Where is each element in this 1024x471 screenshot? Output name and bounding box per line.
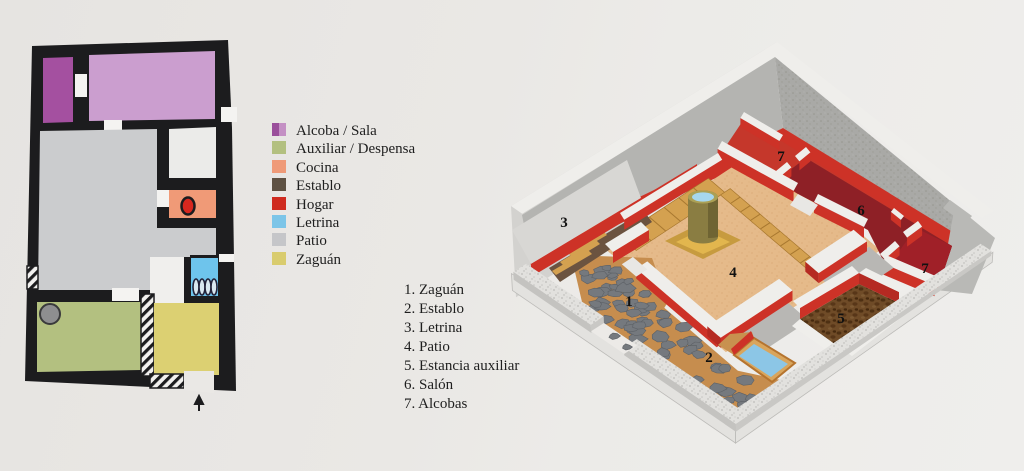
svg-text:Auxiliar / Despensa: Auxiliar / Despensa [296,141,415,157]
svg-text:Letrina: Letrina [296,215,340,231]
svg-text:7. Alcobas: 7. Alcobas [404,396,467,412]
svg-text:2: 2 [705,350,713,366]
svg-text:3. Letrina: 3. Letrina [404,320,463,336]
svg-text:5. Estancia auxiliar: 5. Estancia auxiliar [404,358,519,374]
svg-text:Alcoba / Sala: Alcoba / Sala [296,123,377,139]
svg-text:Cocina: Cocina [296,160,339,176]
svg-text:5: 5 [837,311,845,327]
svg-text:7: 7 [921,261,929,277]
svg-text:Hogar: Hogar [296,197,334,213]
svg-text:7: 7 [777,149,785,165]
svg-text:1: 1 [625,294,633,310]
svg-text:6. Salón: 6. Salón [404,377,454,393]
svg-text:1. Zaguán: 1. Zaguán [404,282,464,298]
svg-text:4. Patio: 4. Patio [404,339,450,355]
svg-text:Patio: Patio [296,233,327,249]
svg-text:Zaguán: Zaguán [296,252,341,268]
svg-text:4: 4 [729,265,737,281]
svg-text:2. Establo: 2. Establo [404,301,464,317]
svg-text:Establo: Establo [296,178,341,194]
svg-text:3: 3 [560,215,568,231]
svg-text:6: 6 [857,203,865,219]
